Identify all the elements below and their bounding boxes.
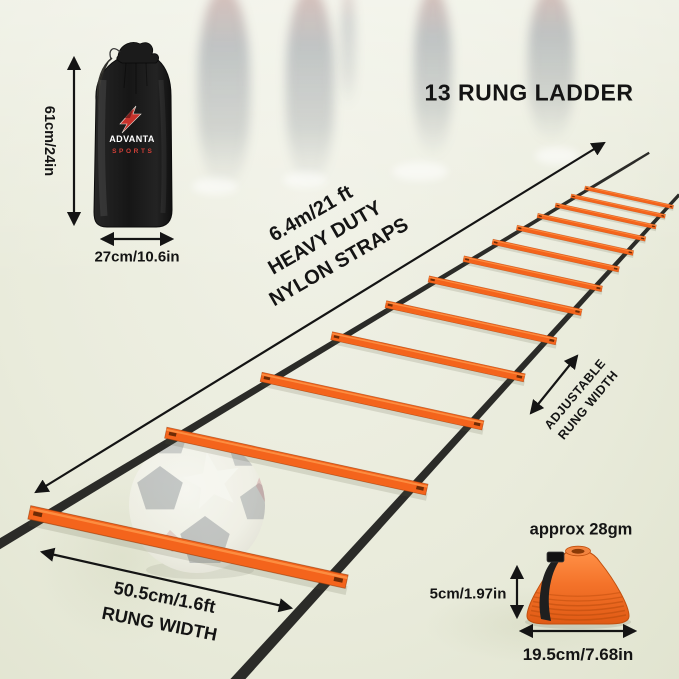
bag-brand: ADVANTA SPORTS	[109, 134, 154, 157]
brand-sub-name: SPORTS	[112, 146, 155, 157]
product-image: ADVANTA SPORTS 61cm/24in 27cm/10.6in 13 …	[0, 0, 679, 679]
bag-height-label: 61cm/24in	[41, 106, 57, 176]
cone-weight-label: approx 28gm	[530, 521, 633, 540]
page-title: 13 RUNG LADDER	[425, 80, 634, 107]
brand-name: ADVANTA	[109, 134, 154, 145]
bag-width-label: 27cm/10.6in	[94, 249, 179, 266]
cone-stack	[525, 546, 631, 629]
cone-height-label: 5cm/1.97in	[430, 586, 507, 603]
cone-diameter-label: 19.5cm/7.68in	[523, 645, 634, 665]
